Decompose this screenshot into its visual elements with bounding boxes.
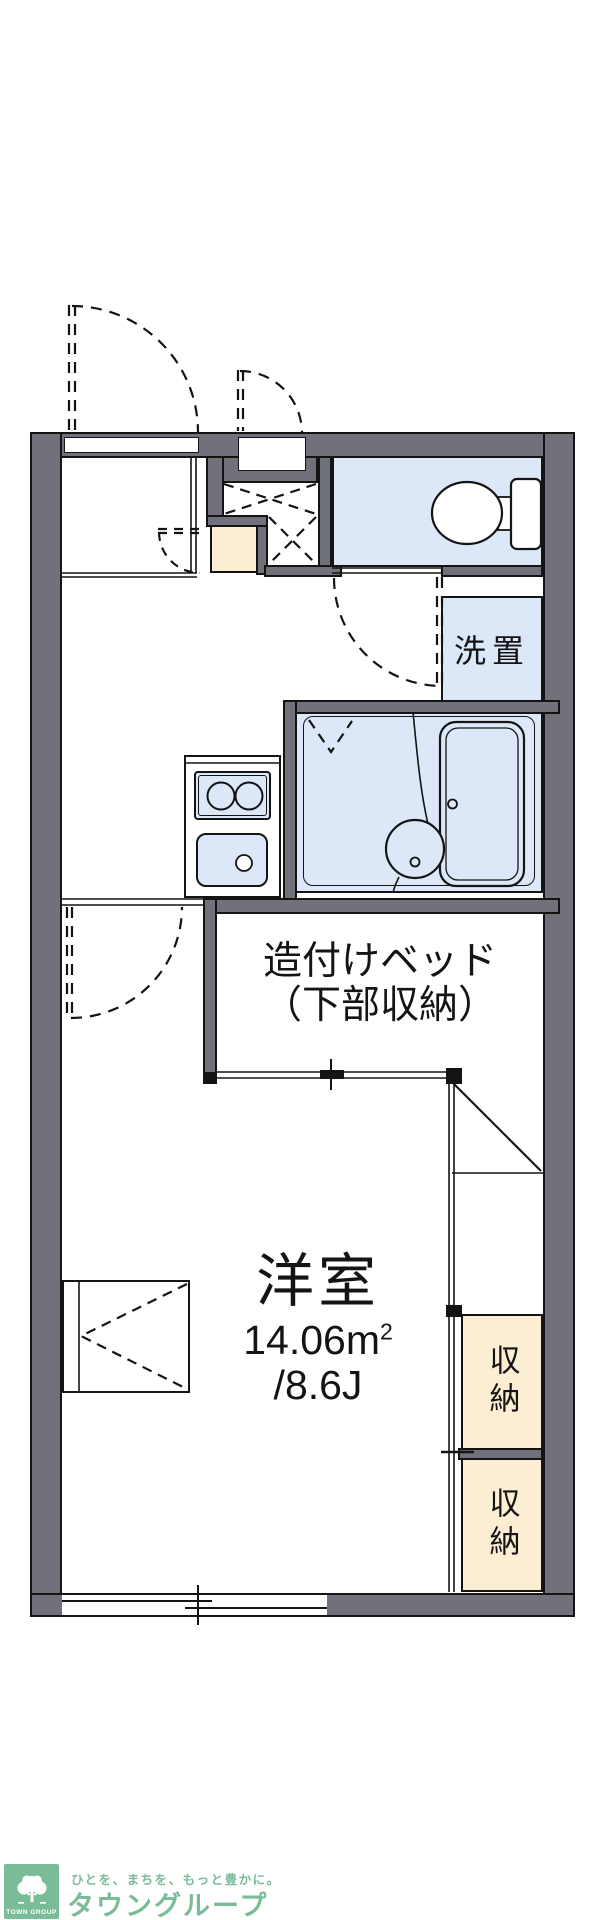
wall-cap-bed-left xyxy=(203,1072,217,1084)
kitchen-stove-inner-line xyxy=(198,775,267,816)
door-recess-entrance xyxy=(238,437,306,471)
wall-toilet-bottom xyxy=(441,565,543,577)
wall-bath-top xyxy=(283,700,560,714)
built-in-bed-label: 造付けベッド （下部収納） xyxy=(205,940,555,1027)
corner-diagonal-mark xyxy=(452,1082,541,1171)
room-area-tatami: /8.6J xyxy=(143,1364,493,1407)
laundry-door-swing xyxy=(334,577,442,688)
logo-square-text: TOWN GROUP xyxy=(6,1909,56,1916)
town-group-logo: TOWN GROUP xyxy=(4,1864,59,1919)
door-recess-storage-room xyxy=(64,437,199,453)
room-area-superscript: 2 xyxy=(380,1318,393,1344)
wall-entry-bottom xyxy=(264,565,342,577)
bed-junction-block xyxy=(320,1070,344,1079)
brand-name: タウングループ xyxy=(67,1884,268,1920)
tree-icon xyxy=(12,1873,52,1909)
window-recess-bottom xyxy=(62,1595,327,1615)
room-area: 14.06m2 xyxy=(143,1319,493,1362)
wall-cap-bed-right xyxy=(446,1068,462,1084)
room-name: 洋室 xyxy=(143,1252,493,1313)
bathroom-tray-line xyxy=(303,716,535,886)
outer-wall-left xyxy=(30,432,62,1617)
main-room-label: 洋室 14.06m2 /8.6J xyxy=(143,1252,493,1407)
storage-lower-label: 収納 xyxy=(480,1487,525,1563)
floor-plan: 洗置 収納 収納 xyxy=(0,0,604,1920)
main-room-door-swing xyxy=(67,907,182,1019)
entrance-door-swing xyxy=(238,370,302,433)
bed-label-line2: （下部収納） xyxy=(205,984,555,1028)
laundry-label: 洗置 xyxy=(454,626,530,672)
wall-entry-right xyxy=(318,456,332,577)
washing-machine-space: 洗置 xyxy=(441,596,543,702)
wall-bath-left xyxy=(283,700,297,900)
wall-storage-divider xyxy=(458,1448,543,1460)
shoe-cabinet xyxy=(210,523,260,573)
storage-room-door-swing xyxy=(69,305,198,432)
toilet-room xyxy=(332,456,543,567)
wall-bed-top xyxy=(203,898,560,914)
bed-label-line1: 造付けベッド xyxy=(205,940,555,984)
wall-entry-left xyxy=(206,456,224,522)
storage-closet-lower: 収納 xyxy=(461,1458,543,1592)
storage-room-inner-door-swing xyxy=(158,529,200,573)
kitchen-sink xyxy=(196,833,268,887)
